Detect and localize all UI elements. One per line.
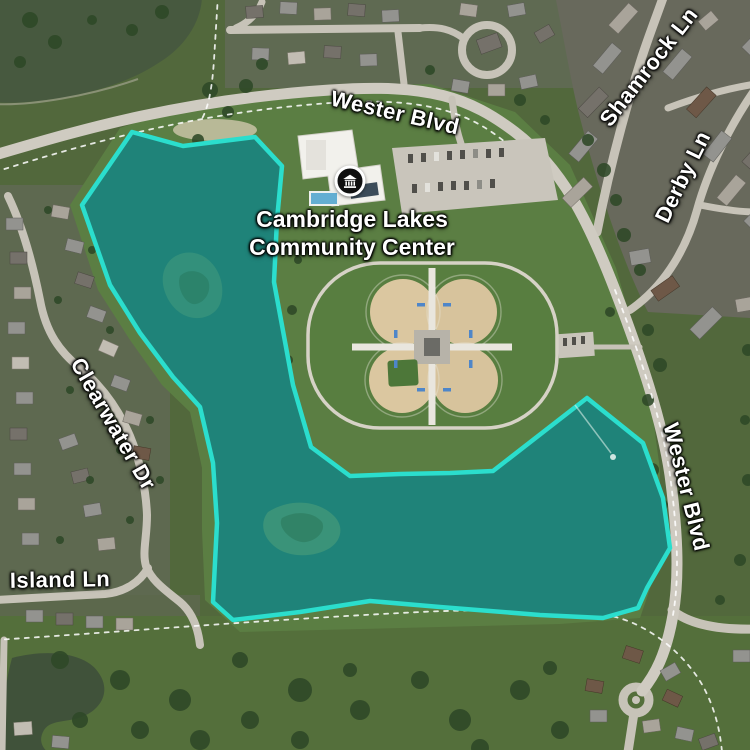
baseball-complex	[308, 263, 557, 428]
landmark-glyph	[342, 173, 359, 190]
road-label-island-ln: Island Ln	[10, 568, 111, 592]
map-canvas[interactable]: Wester Blvd Shamrock Ln Derby Ln Clearwa…	[0, 0, 750, 750]
landmark-icon[interactable]	[335, 166, 366, 197]
lake-fountain	[610, 454, 616, 460]
poi-label-line2: Community Center	[249, 233, 455, 261]
poi-label-line1: Cambridge Lakes	[249, 205, 455, 233]
poi-label-cambridge-lakes-community-center[interactable]: Cambridge Lakes Community Center	[249, 205, 455, 261]
